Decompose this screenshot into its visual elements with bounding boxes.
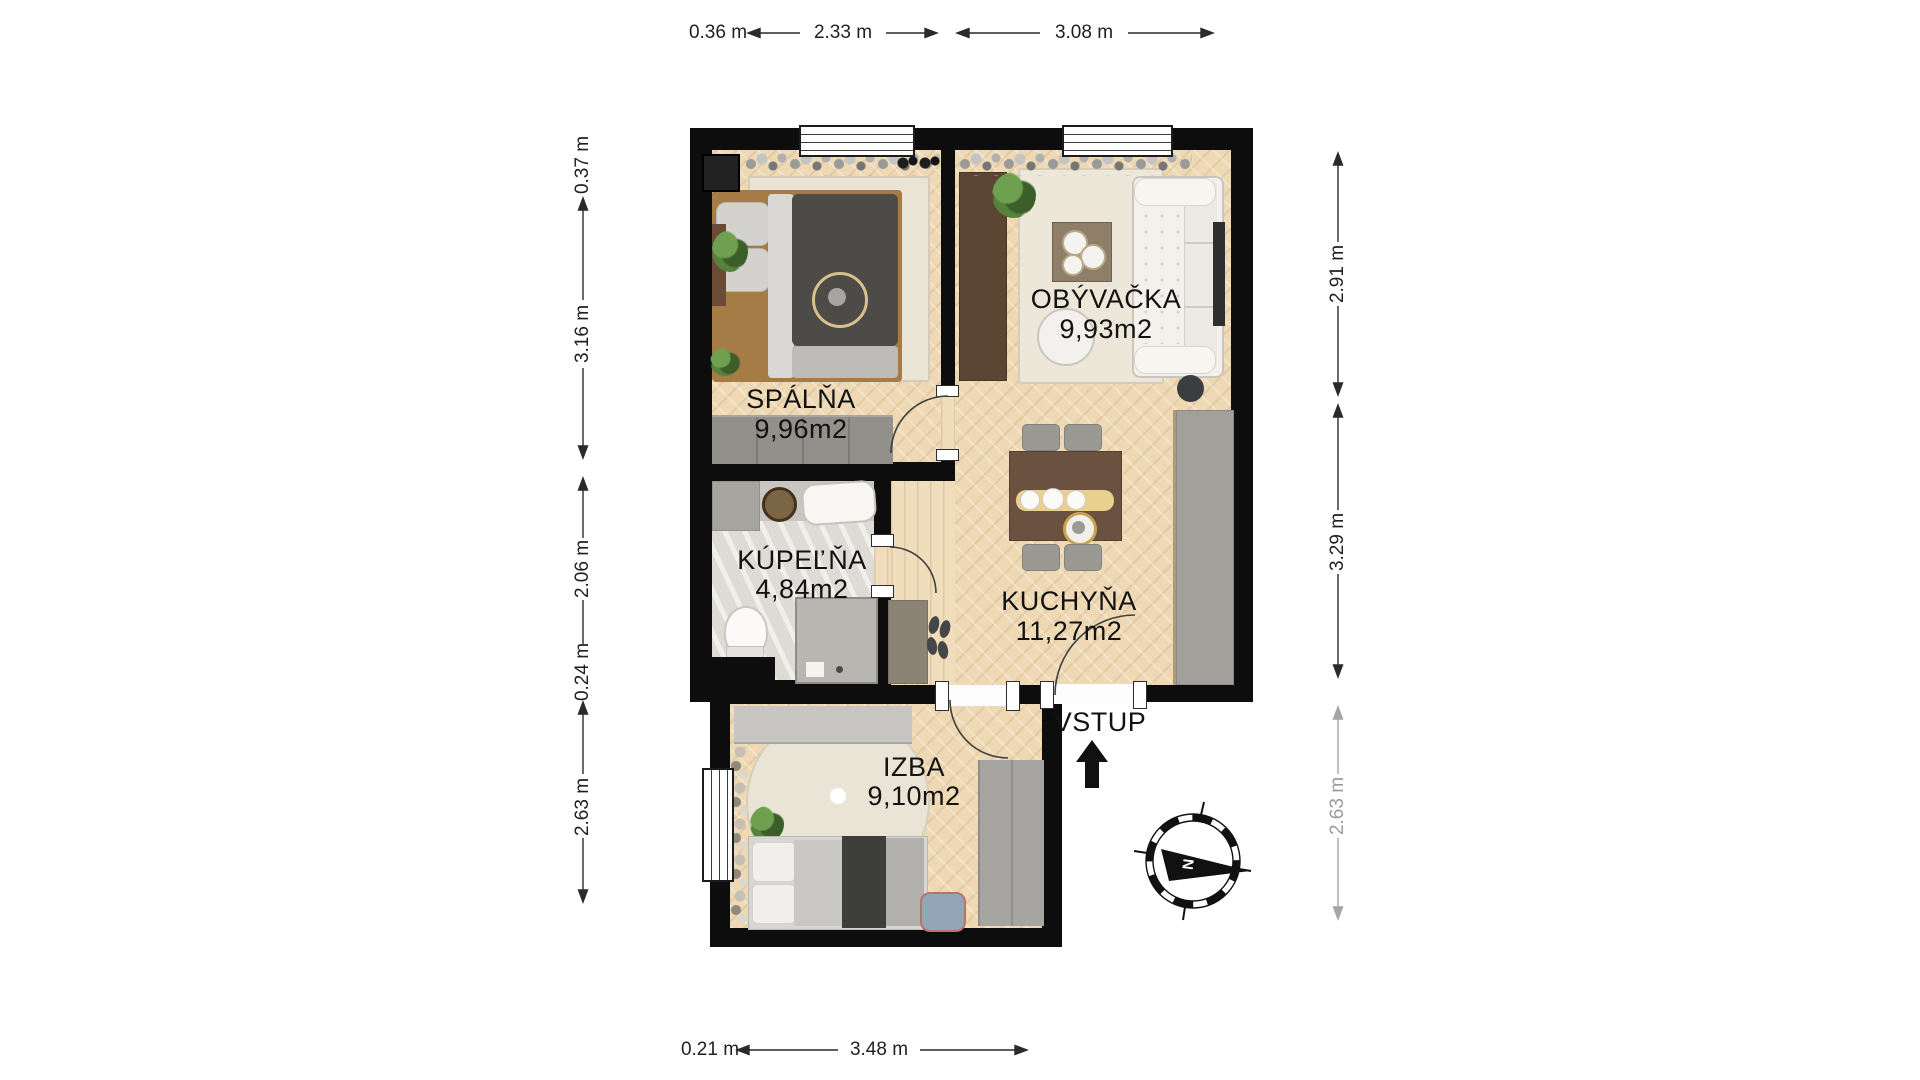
- izba-sheet: [794, 840, 842, 926]
- plant-icon: [712, 230, 748, 272]
- duvet-ring-dot: [828, 288, 846, 306]
- sink-round: [762, 487, 797, 522]
- room-label-kupelna: KÚPEĽŇA: [652, 545, 952, 576]
- room-label-spalna: SPÁLŇA: [651, 384, 951, 415]
- dim-top-2: 2.33 m: [788, 22, 898, 44]
- entry-doorway: [1052, 684, 1133, 704]
- room-area-kuchyna: 11,27m2: [919, 616, 1219, 647]
- izba-pillow: [752, 842, 796, 882]
- izba-window: [702, 768, 734, 882]
- dim-top-3: 3.08 m: [1029, 22, 1139, 44]
- desk: [734, 706, 912, 744]
- plate: [1020, 490, 1040, 510]
- plant-icon: [992, 172, 1036, 218]
- plant-icon: [710, 348, 740, 376]
- izba-doorway: [947, 685, 1006, 706]
- dining-chair: [1064, 424, 1102, 451]
- bed-sheet: [768, 194, 794, 378]
- dim-bottom-2: 3.48 m: [824, 1039, 934, 1061]
- coffee-table-tray: [1062, 254, 1084, 276]
- dim-left-1: 0.37 m: [572, 110, 594, 220]
- pouf: [920, 892, 966, 932]
- sofa-armrest: [1134, 178, 1216, 206]
- dim-right-3: 2.63 m: [1327, 751, 1349, 861]
- izba-blanket: [842, 836, 886, 928]
- plate: [1066, 490, 1086, 510]
- dining-chair: [1022, 544, 1060, 571]
- cup: [1072, 521, 1085, 534]
- dim-right-1: 2.91 m: [1327, 219, 1349, 329]
- room-area-obyvacka: 9,93m2: [956, 314, 1256, 345]
- door-frame: [1133, 681, 1147, 709]
- room-area-spalna: 9,96m2: [651, 414, 951, 445]
- entrance-label: VSTUP: [950, 707, 1250, 738]
- door-frame: [935, 681, 949, 711]
- dim-bottom-1: 0.21 m: [655, 1039, 765, 1061]
- shower-tray: [806, 662, 824, 677]
- living-window: [1062, 125, 1173, 157]
- washing-machine: [712, 481, 760, 531]
- dim-left-5: 2.63 m: [572, 752, 594, 862]
- izba-mattress: [886, 838, 924, 926]
- bedroom-window: [799, 125, 915, 157]
- wall-stub: [712, 657, 775, 680]
- room-label-izba: IZBA: [764, 752, 1064, 783]
- room-area-kupelna: 4,84m2: [652, 574, 952, 605]
- dim-top-1: 0.36 m: [663, 22, 773, 44]
- room-label-kuchyna: KUCHYŇA: [919, 586, 1219, 617]
- sofa-armrest: [1134, 346, 1216, 374]
- bathtub: [801, 479, 878, 526]
- dim-left-4: 0.24 m: [572, 617, 594, 727]
- dim-right-2: 3.29 m: [1327, 487, 1349, 597]
- door-frame: [1040, 681, 1054, 709]
- compass-north-label: N: [1175, 853, 1197, 875]
- plate: [1042, 488, 1064, 510]
- room-label-obyvacka: OBÝVAČKA: [956, 284, 1256, 315]
- dim-left-3: 2.06 m: [572, 514, 594, 624]
- door-frame: [936, 449, 959, 461]
- entry-arrow-icon: [1076, 740, 1108, 788]
- shower-drain: [836, 666, 843, 673]
- floor-lamp: [1177, 375, 1204, 402]
- izba-pillow: [752, 884, 796, 924]
- dining-chair: [1022, 424, 1060, 451]
- room-area-izba: 9,10m2: [764, 781, 1064, 812]
- dim-left-2: 3.16 m: [572, 279, 594, 389]
- floorplan-page: SPÁLŇA 9,96m2 OBÝVAČKA 9,93m2 KÚPEĽŇA 4,…: [0, 0, 1920, 1080]
- bed-foot-mattress: [792, 346, 898, 378]
- dining-chair: [1064, 544, 1102, 571]
- corner-shaft: [702, 154, 740, 192]
